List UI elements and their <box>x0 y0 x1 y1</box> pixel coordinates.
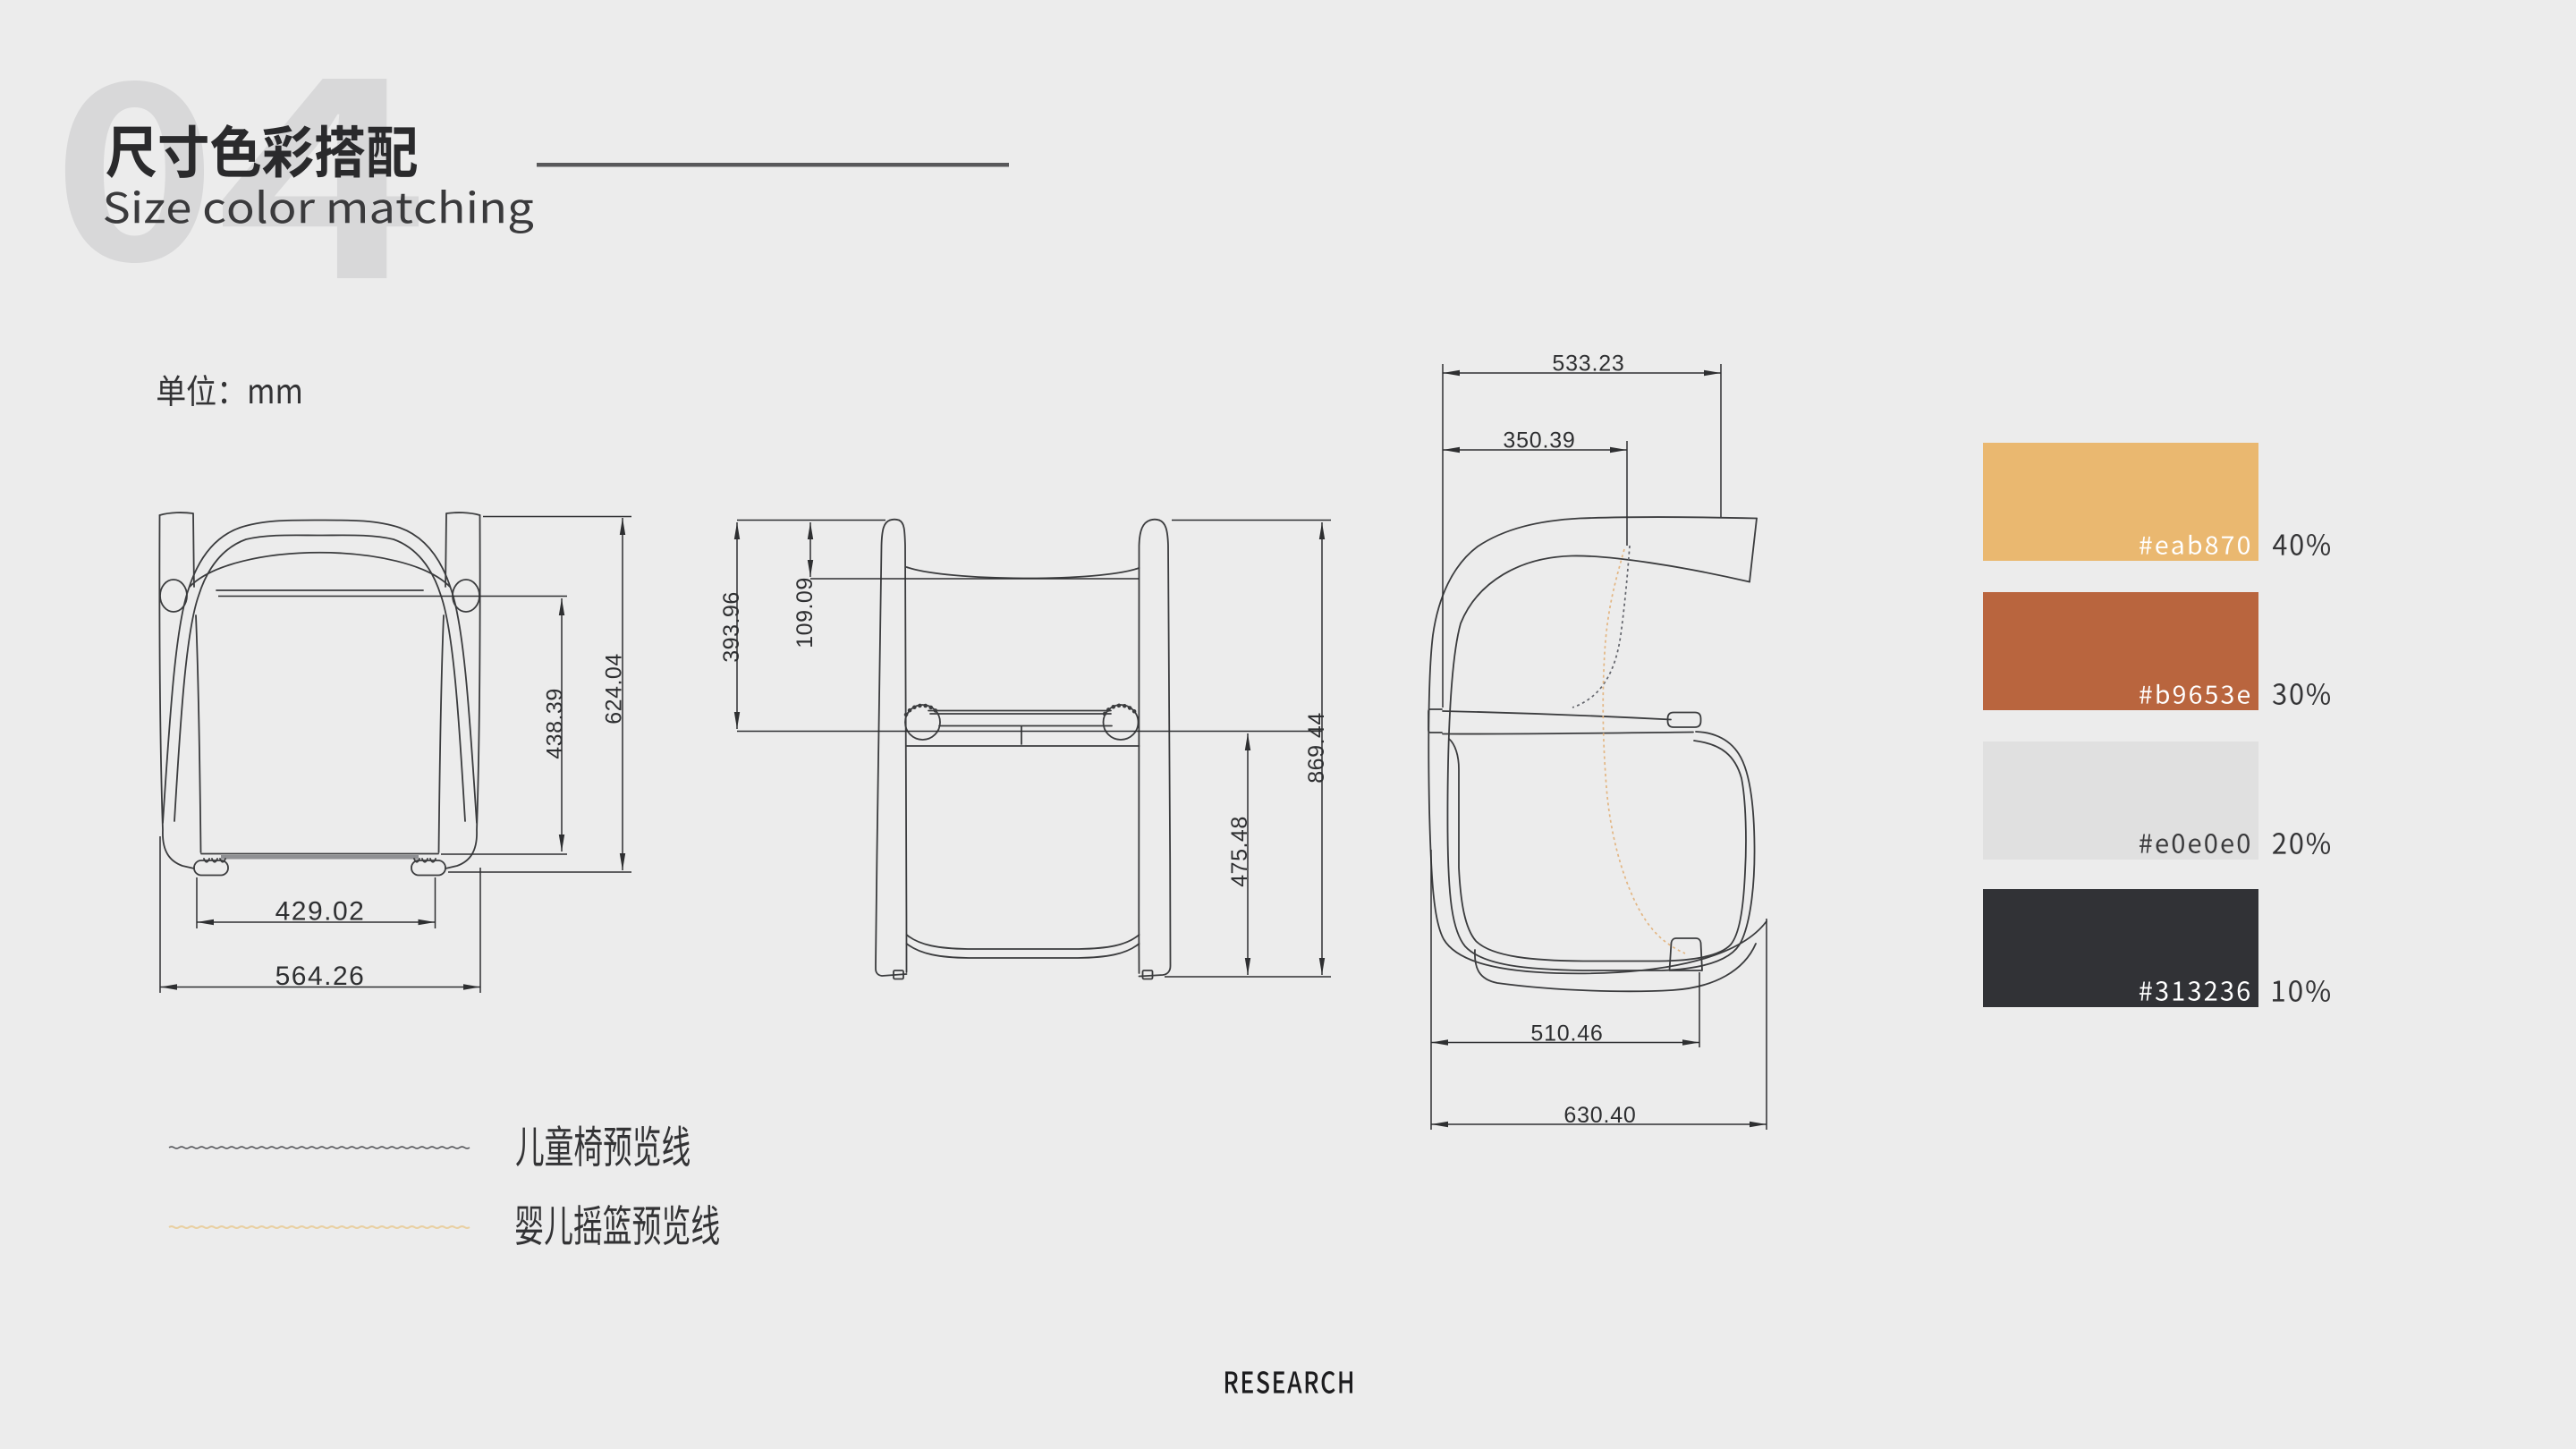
svg-text:533.23: 533.23 <box>1552 352 1624 377</box>
svg-text:475.48: 475.48 <box>1227 816 1252 886</box>
svg-text:393.96: 393.96 <box>719 591 744 662</box>
svg-text:510.46: 510.46 <box>1530 1021 1603 1046</box>
svg-text:429.02: 429.02 <box>275 897 366 927</box>
svg-text:438.39: 438.39 <box>543 688 568 758</box>
svg-text:564.26: 564.26 <box>275 962 366 991</box>
svg-text:624.04: 624.04 <box>602 653 627 724</box>
svg-text:869.44: 869.44 <box>1304 712 1329 783</box>
svg-text:630.40: 630.40 <box>1563 1103 1636 1128</box>
svg-text:109.09: 109.09 <box>792 577 818 648</box>
svg-text:350.39: 350.39 <box>1503 428 1575 453</box>
